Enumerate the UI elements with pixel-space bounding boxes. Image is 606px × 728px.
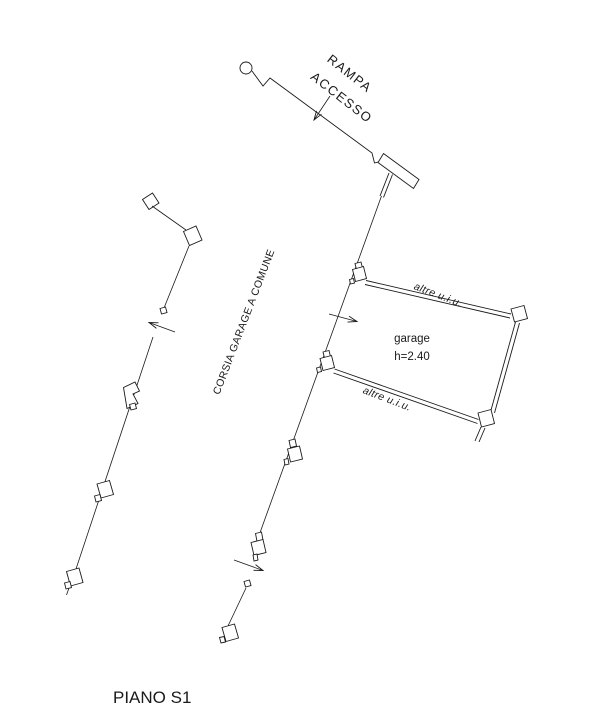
floor-title: PIANO S1 xyxy=(113,688,191,707)
arrow-into-garage-icon xyxy=(329,314,357,322)
ramp-end-circle xyxy=(240,62,252,74)
garage-right-wall-inner xyxy=(495,323,520,413)
arrow-right-icon xyxy=(234,560,263,571)
gate-post xyxy=(143,193,160,210)
gate-pillar xyxy=(184,226,203,246)
pillar xyxy=(511,306,528,323)
garage-height-label: h=2.40 xyxy=(394,351,430,363)
pillar xyxy=(317,351,335,373)
wall-stub xyxy=(244,580,251,587)
ramp-stem-wall-left xyxy=(380,173,389,196)
wall-stub xyxy=(130,403,137,410)
left-boundary-wall xyxy=(65,193,203,595)
gate-leaf-line xyxy=(152,206,186,230)
garage-walls xyxy=(334,281,528,443)
adjacent-unit-label-top: altre u.i.u. xyxy=(412,280,464,309)
garage-right-wall xyxy=(491,322,516,412)
arrow-left-icon xyxy=(149,323,175,333)
floor-plan-svg: RAMPA ACCESSO CORSIA GARAGE A COMUNE alt… xyxy=(0,0,606,728)
garage-bottom-wall-inner xyxy=(334,373,478,424)
pillar xyxy=(220,624,239,643)
pillar xyxy=(65,568,84,589)
boundary-line-upper xyxy=(164,246,189,308)
ramp-stem-wall-right xyxy=(384,175,393,198)
floor-plan-canvas: RAMPA ACCESSO CORSIA GARAGE A COMUNE alt… xyxy=(0,0,606,728)
pillar xyxy=(251,532,266,561)
garage-label: garage xyxy=(394,333,430,345)
corridor-line-lower xyxy=(228,588,246,626)
ramp-retaining-wall xyxy=(378,154,419,189)
pillar xyxy=(95,481,114,503)
corridor-boundary xyxy=(220,196,382,643)
boundary-line-lower xyxy=(73,337,153,578)
wall-stub xyxy=(160,307,167,314)
corridor-label: CORSIA GARAGE A COMUNE xyxy=(211,248,278,397)
pillar xyxy=(350,262,367,284)
pillar xyxy=(478,410,495,428)
pillar xyxy=(284,439,303,465)
adjacent-unit-label-bottom: altre u.i.u. xyxy=(361,384,413,413)
